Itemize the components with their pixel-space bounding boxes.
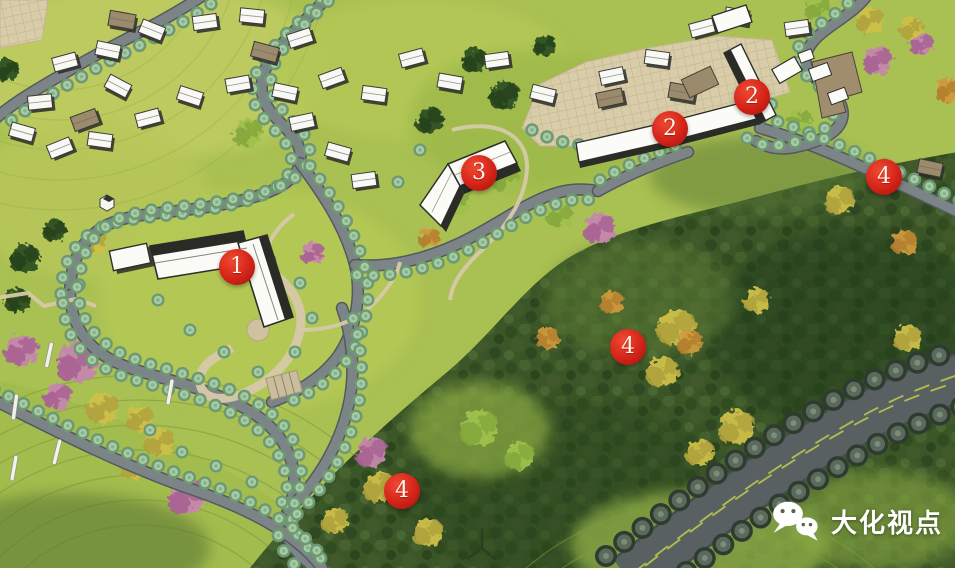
site-plan: 1223444 大化视点 (0, 0, 955, 568)
watermark: 大化视点 (770, 498, 943, 544)
pavilion (100, 195, 114, 211)
watermark-text: 大化视点 (831, 503, 943, 540)
site-plan-rendering (0, 0, 955, 568)
wechat-icon (770, 498, 824, 544)
